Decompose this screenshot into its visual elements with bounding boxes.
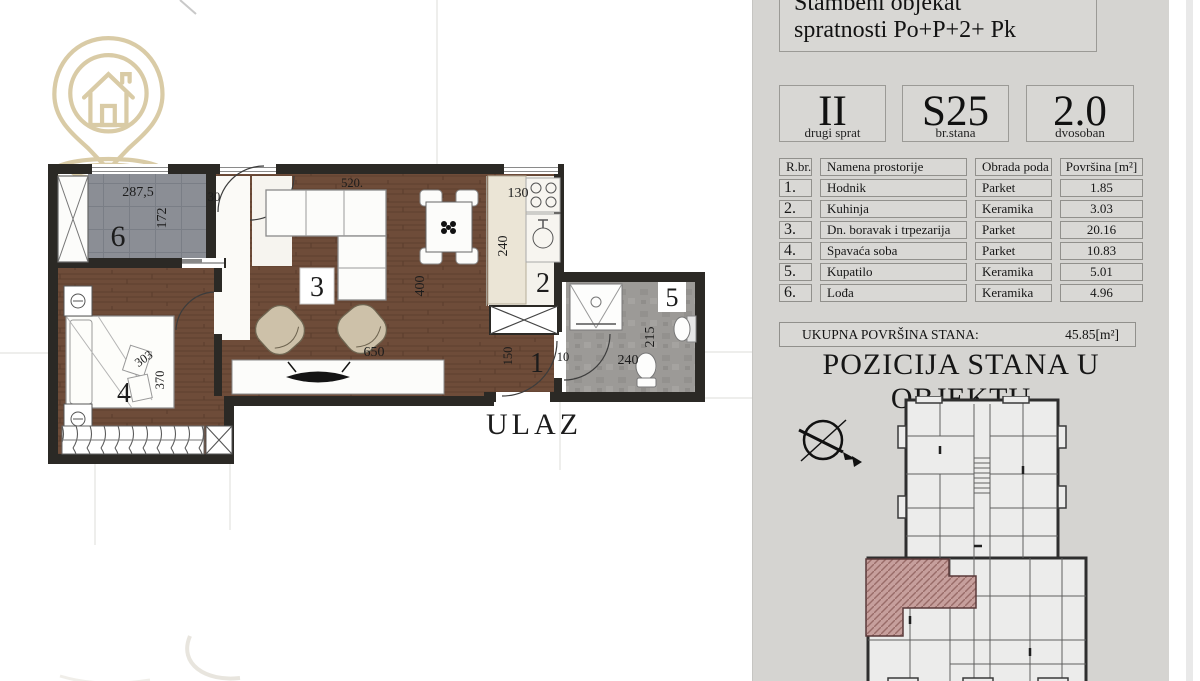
room-name: Kupatilo [820,263,967,281]
col-header-name: Namena prostorije [820,158,967,176]
floor-type: Parket [975,179,1052,197]
shower [570,284,622,330]
room-name: Dn. boravak i trpezarija [820,221,967,239]
apartment-floorplan: 287,5 172 6 303 370 4 [0,0,760,681]
total-area-label: UKUPNA POVRŠINA STANA: [802,327,979,343]
apartment-listing-sheet: 287,5 172 6 303 370 4 [0,0,1200,681]
room-area: 5.01 [1060,263,1143,281]
room-area: 4.96 [1060,284,1143,302]
window [92,164,168,174]
loggia-sliding-door [182,258,224,268]
unit-number-label: br.stana [935,126,975,141]
dim-kitchen-width: 130 [508,186,529,201]
room-count-label: dvosoban [1055,126,1105,141]
total-area-value: 45.85[m²] [1065,327,1119,343]
dim-bath-depth: 215 [643,327,658,348]
room-area: 1.85 [1060,179,1143,197]
entrance-label: ULAZ [486,408,582,441]
row-number: 3. [779,221,812,239]
kitchen-sink [526,214,560,262]
room-number-bath: 5 [666,283,679,312]
dim-loggia-depth: 172 [155,208,170,229]
closet-x-box [206,426,232,454]
row-number: 6. [779,284,812,302]
room-area: 3.03 [1060,200,1143,218]
room-name: Kuhinja [820,200,967,218]
right-edge-band [1186,0,1193,681]
col-header-floor: Obrada poda [975,158,1052,176]
house-pin-watermark-icon [53,38,163,184]
room-count-box: 2.0 dvosoban [1026,85,1134,142]
dim-dining-depth: 400 [413,276,428,297]
row-number: 4. [779,242,812,260]
row-number: 1. [779,179,812,197]
room-name: Lođa [820,284,967,302]
building-title-box: Stambeni objekat spratnosti Po+P+2+ Pk [779,0,1097,52]
hall-closet [490,306,558,334]
col-header-area: Površina [m²] [1060,158,1143,176]
floor-type: Keramika [975,284,1052,302]
tv-console [232,360,444,394]
dim-bed-length: 370 [153,371,167,390]
room-number-bedroom: 4 [117,378,131,409]
room-name: Hodnik [820,179,967,197]
dim-hall-width: 10 [557,350,570,364]
balcony-x-strip [58,176,88,262]
room-area: 10.83 [1060,242,1143,260]
room-number-loggia: 6 [111,220,126,253]
building-position-plan [853,396,1103,681]
floor-type: Keramika [975,200,1052,218]
room-number-hall: 1 [530,348,544,379]
wardrobe [62,426,204,454]
bathroom-sink [674,316,696,342]
entrance-door-gap [496,392,550,402]
col-header-number: R.br. [779,158,812,176]
room-name: Spavaća soba [820,242,967,260]
dim-hall-depth: 150 [501,347,515,366]
dim-sofa: 520. [341,176,363,190]
total-area-box: UKUPNA POVRŠINA STANA: 45.85[m²] [779,322,1136,347]
floor-type: Keramika [975,263,1052,281]
row-number: 2. [779,200,812,218]
floor-type: Parket [975,221,1052,239]
floor-label: drugi sprat [805,126,861,141]
kitchen-room: 130 240 2 [488,176,560,304]
row-number: 5. [779,263,812,281]
room-number-kitchen: 2 [536,268,550,299]
dim-bath-width: 240 [618,353,639,368]
building-title-line2: spratnosti Po+P+2+ Pk [794,17,1096,44]
toilet [636,353,656,387]
window [504,164,558,174]
building-title-line1: Stambeni objekat [794,0,1096,17]
dim-vestibule: 30 [208,190,221,204]
room-area: 20.16 [1060,221,1143,239]
vent-box [64,286,92,316]
dim-living-width: 650 [364,345,385,360]
unit-number-box: S25 br.stana [902,85,1009,142]
floor-type: Parket [975,242,1052,260]
room-number-living: 3 [310,272,324,303]
dim-loggia-width: 287,5 [122,185,154,200]
stove [526,178,560,212]
rooms-table: R.br. Namena prostorije Obrada poda Povr… [779,158,1143,302]
floor-box: II drugi sprat [779,85,886,142]
info-panel: Stambeni objekat spratnosti Po+P+2+ Pk I… [752,0,1169,681]
dim-kitchen-depth: 240 [496,236,511,257]
